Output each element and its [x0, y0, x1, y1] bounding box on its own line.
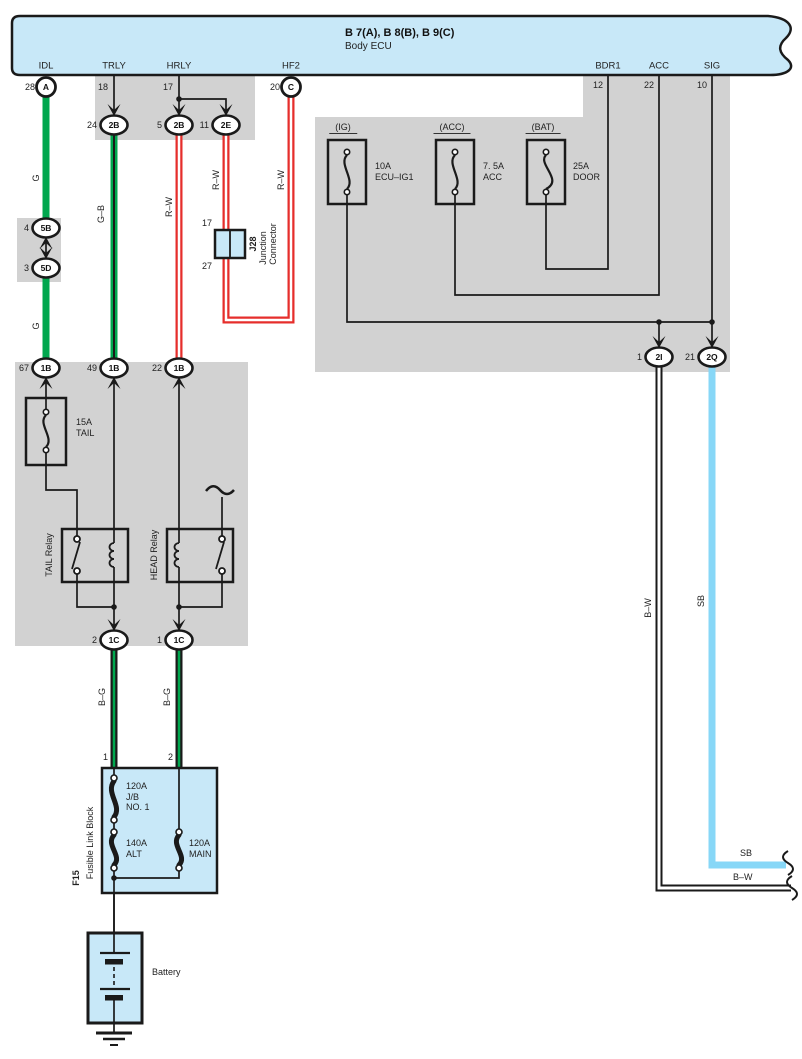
connector-2b-24-num: 24 [87, 120, 97, 130]
shade-junction-block [315, 117, 730, 372]
connector-5b: 5B [41, 223, 52, 233]
fusible-link1-label: 120A J/B NO. 1 [126, 781, 150, 813]
wire-label-gb: G–B [96, 205, 106, 223]
connector-1b-22-num: 22 [152, 363, 162, 373]
ecu-pin-sig: SIG [704, 61, 720, 72]
connector-1b-49: 1B [109, 363, 120, 373]
fuse-ig-label: 10A ECU–IG1 [375, 161, 414, 182]
fusible-link2-label: 140A ALT [126, 838, 147, 859]
battery-box [88, 933, 142, 1023]
schematic-canvas [0, 0, 802, 1059]
wire-label-rw3: R–W [276, 170, 286, 190]
pin-num-17: 17 [163, 82, 173, 92]
wire-label-sb-vertical: SB [696, 595, 706, 607]
wire-sky-blue-2q [712, 366, 786, 865]
ecu-pin-acc: ACC [649, 61, 669, 72]
wire-label-rw2: R–W [211, 170, 221, 190]
fuse-bat-tag: (BAT) [526, 122, 561, 134]
ecu-pin-trly: TRLY [102, 61, 126, 72]
j28-id: J28 [248, 236, 258, 251]
connector-1c-2: 1C [109, 635, 120, 645]
wiring-diagram: B 7(A), B 8(B), B 9(C) Body ECU IDL TRLY… [0, 0, 802, 1059]
body-ecu-banner [12, 16, 791, 75]
pin-num-12: 12 [593, 80, 603, 90]
pin-num-22: 22 [644, 80, 654, 90]
connector-2b-24: 2B [109, 120, 120, 130]
head-relay-label: HEAD Relay [149, 530, 159, 581]
j28-pin-bottom: 27 [202, 261, 212, 271]
ground-icon [96, 1033, 132, 1045]
connector-2e-11: 2E [221, 120, 231, 130]
terminal-a-label: A [43, 82, 49, 92]
tail-relay-label: TAIL Relay [44, 533, 54, 577]
connector-2b-5-num: 5 [157, 120, 162, 130]
connector-5d: 5D [41, 263, 52, 273]
ecu-title: B 7(A), B 8(B), B 9(C) [345, 27, 454, 39]
wire-label-rw1: R–W [164, 197, 174, 217]
fusible-link-block-box [102, 768, 217, 893]
pin-num-28: 28 [25, 82, 35, 92]
connector-2q: 2Q [706, 352, 717, 362]
connector-2i-num: 1 [637, 352, 642, 362]
connector-2q-num: 21 [685, 352, 695, 362]
j28-name: Junction Connector [258, 223, 278, 265]
pin-num-10: 10 [697, 80, 707, 90]
fuse-acc-tag: (ACC) [434, 122, 471, 134]
fusible-junction-dot [111, 875, 117, 881]
fusible-block-id: F15 [71, 870, 81, 886]
ecu-pin-bdr1: BDR1 [595, 61, 620, 72]
connector-1b-49-num: 49 [87, 363, 97, 373]
terminal-c-label: C [288, 82, 294, 92]
fuse-bat-label: 25A DOOR [573, 161, 600, 182]
wire-label-g2: G [31, 322, 41, 329]
wire-label-g1: G [31, 174, 41, 181]
connector-1c-2-num: 2 [92, 635, 97, 645]
fusible-pin-1: 1 [103, 752, 108, 762]
connector-2i: 2I [655, 352, 662, 362]
ecu-pin-idl: IDL [39, 61, 54, 72]
connector-1c-1-num: 1 [157, 635, 162, 645]
j28-pin-top: 17 [202, 218, 212, 228]
fuse-acc-label: 7. 5A ACC [483, 161, 504, 182]
shade-relay-block [15, 362, 248, 646]
connector-1b-67-num: 67 [19, 363, 29, 373]
ecu-pin-hrly: HRLY [167, 61, 192, 72]
connector-2e-11-num: 11 [200, 120, 209, 130]
wire-label-bw-horizontal: B–W [733, 872, 753, 882]
wire-label-sb-horizontal: SB [740, 848, 752, 858]
wire-label-bw-vertical: B–W [643, 598, 653, 618]
fusible-pin-2: 2 [168, 752, 173, 762]
j28-junction-connector [215, 230, 245, 258]
wire-label-bg2: B–G [162, 688, 172, 706]
wire-black-white-2i [659, 366, 791, 888]
connector-1c-1: 1C [174, 635, 185, 645]
pin-num-18: 18 [98, 82, 108, 92]
fuse-ig-tag: (IG) [329, 122, 357, 134]
fusible-link3-label: 120A MAIN [189, 838, 212, 859]
ecu-subtitle: Body ECU [345, 41, 392, 52]
continuation-squiggles-right [783, 851, 797, 900]
connector-2b-5: 2B [174, 120, 185, 130]
ecu-pin-hf2: HF2 [282, 61, 300, 72]
connector-5d-num: 3 [24, 263, 29, 273]
fusible-block-name: Fusible Link Block [85, 807, 95, 880]
wire-label-bg1: B–G [97, 688, 107, 706]
connector-5b-num: 4 [24, 223, 29, 233]
connector-1b-22: 1B [174, 363, 185, 373]
pin-num-20: 20 [270, 82, 280, 92]
battery-label: Battery [152, 967, 181, 977]
fuse-tail-label: 15A TAIL [76, 417, 94, 438]
connector-1b-67: 1B [41, 363, 52, 373]
